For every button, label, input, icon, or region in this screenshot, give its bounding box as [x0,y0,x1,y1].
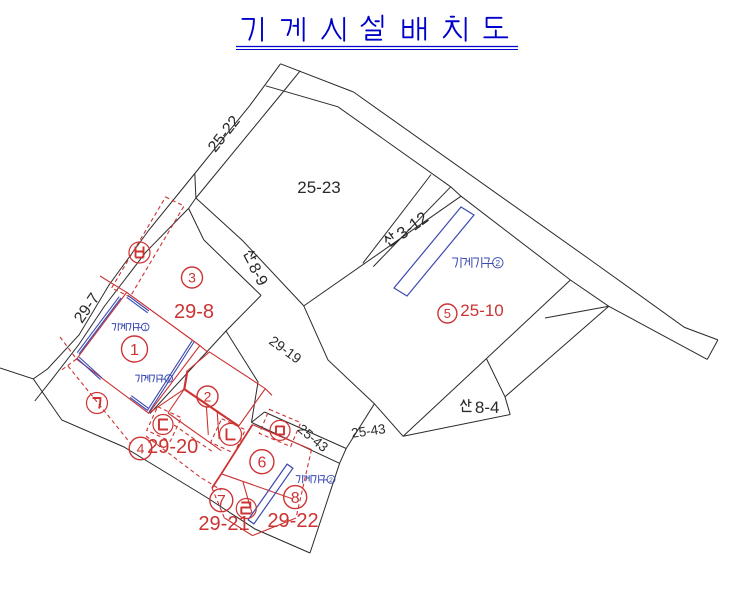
svg-text:29-8: 29-8 [174,301,214,323]
svg-text:1: 1 [167,376,171,383]
svg-text:1: 1 [143,325,147,332]
svg-text:29-22: 29-22 [267,510,318,532]
svg-text:29-21: 29-21 [198,513,249,535]
svg-text:4: 4 [137,441,145,457]
svg-text:8: 8 [291,490,300,507]
svg-text:1: 1 [130,342,139,359]
svg-text:29-20: 29-20 [147,436,198,458]
svg-text:2: 2 [204,389,212,405]
svg-text:5: 5 [444,306,451,321]
svg-text:8-4: 8-4 [475,398,500,417]
svg-text:7: 7 [217,493,226,510]
svg-text:6: 6 [257,454,266,471]
svg-text:25-10: 25-10 [460,301,503,320]
svg-text:25-23: 25-23 [297,178,340,197]
svg-text:2: 2 [495,258,500,268]
svg-text:2: 2 [329,477,333,484]
svg-text:3: 3 [188,270,196,286]
